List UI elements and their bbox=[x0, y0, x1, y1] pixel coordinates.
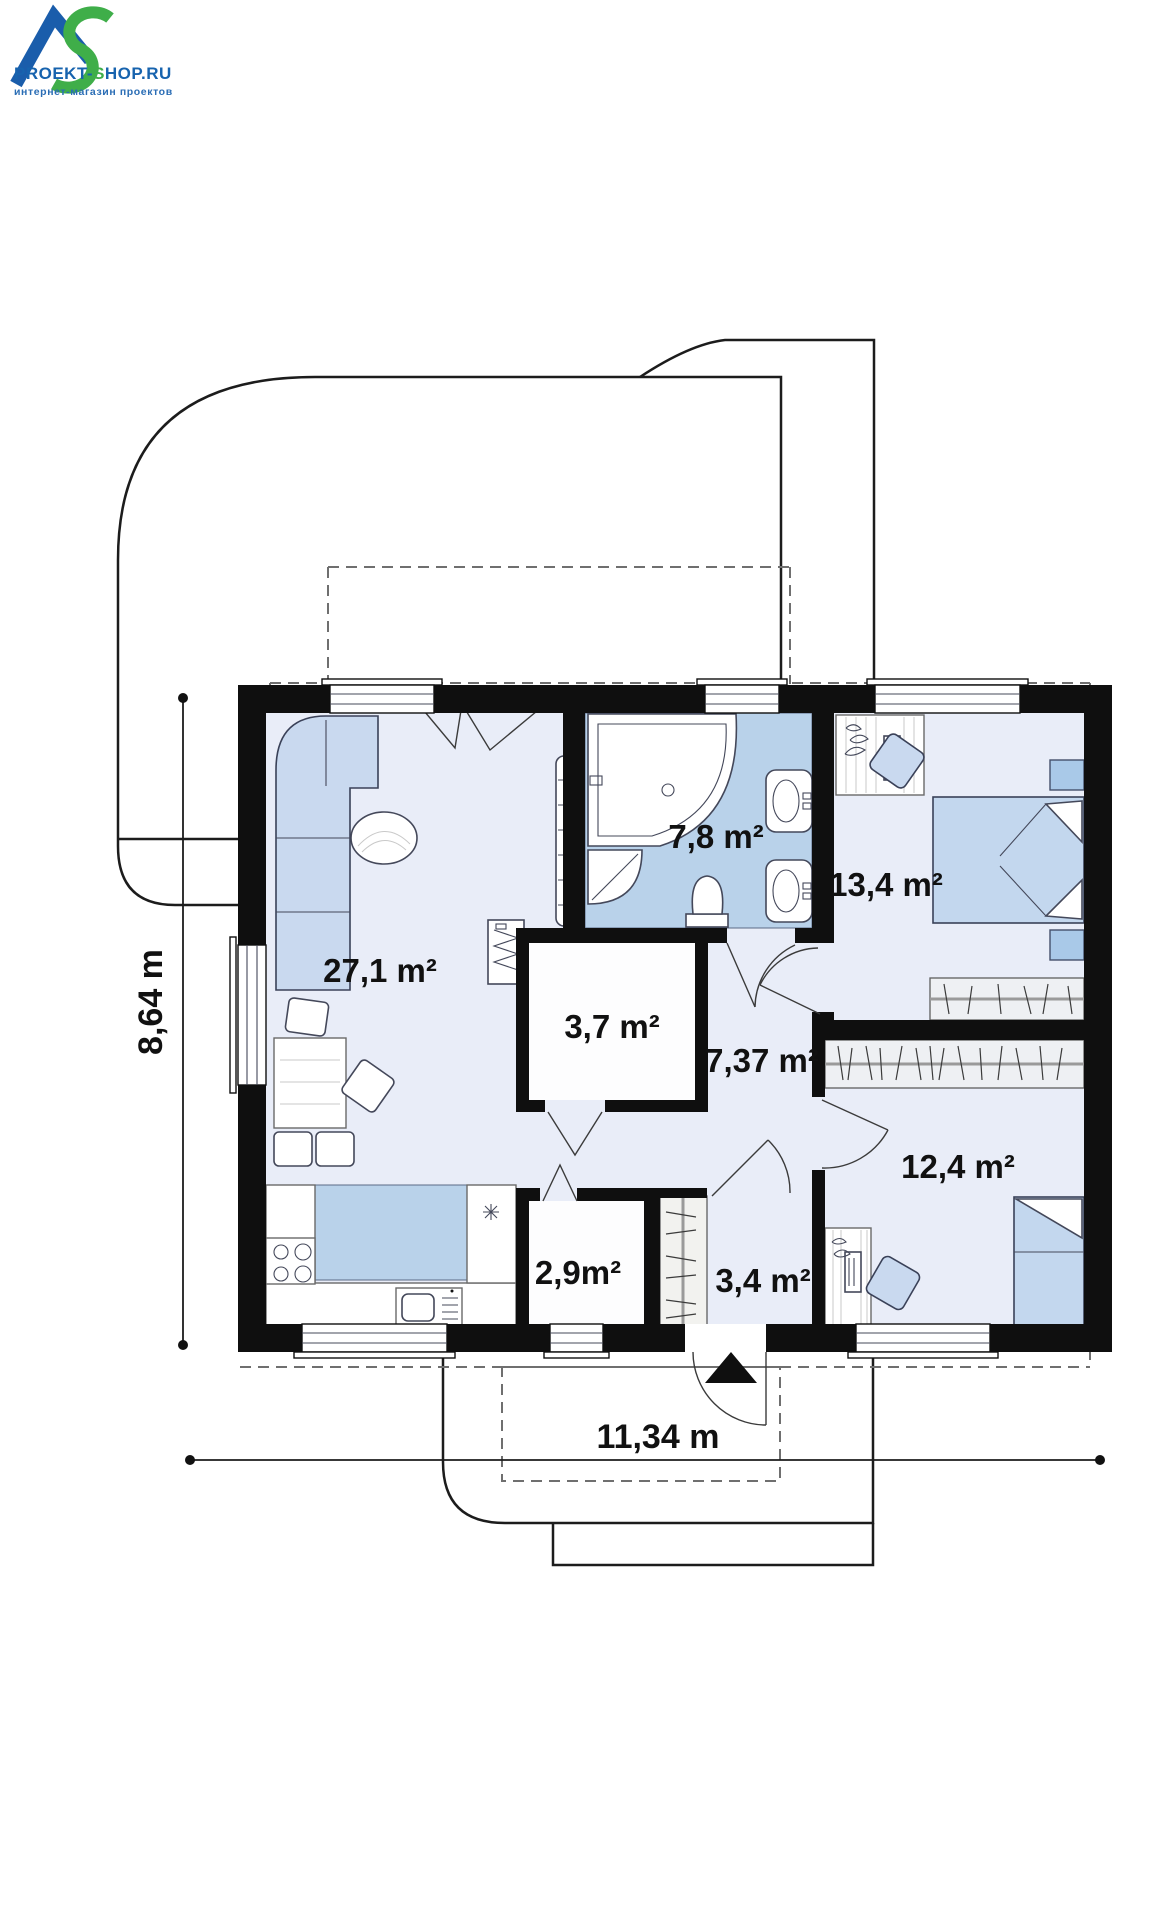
bathroom-sink-1 bbox=[766, 770, 812, 832]
logo: PROEKT-SHOP.RU интернет-магазин проектов bbox=[14, 12, 173, 98]
label-tech-room: 3,7 m² bbox=[564, 1008, 659, 1045]
window-bottom-pantry bbox=[544, 1324, 609, 1358]
label-living-room: 27,1 m² bbox=[323, 952, 437, 989]
dimension-vertical: 8,64 m bbox=[132, 693, 188, 1350]
stove bbox=[266, 1238, 315, 1284]
logo-title-part3: HOP.RU bbox=[105, 64, 172, 83]
cooker-hood-icon bbox=[483, 1204, 499, 1220]
logo-title-part1: PROEKT- bbox=[14, 64, 93, 83]
dining-chair-3 bbox=[274, 1132, 312, 1166]
label-bedroom-2: 12,4 m² bbox=[901, 1148, 1015, 1185]
kitchen-sink bbox=[396, 1288, 462, 1326]
nightstand-1 bbox=[1050, 760, 1084, 790]
coffee-table bbox=[351, 812, 417, 864]
width-dimension-label: 11,34 m bbox=[597, 1418, 720, 1456]
bathroom-sink-2 bbox=[766, 860, 812, 922]
label-pantry: 2,9m² bbox=[535, 1254, 621, 1291]
bed-1 bbox=[933, 797, 1084, 923]
floor-plan-page: 8,64 m 11,34 m bbox=[0, 0, 1152, 1913]
label-hallway: 7,37 m² bbox=[705, 1042, 819, 1079]
window-bottom-bedroom bbox=[848, 1324, 998, 1358]
window-top-living bbox=[322, 679, 442, 713]
dimension-dot-bottom bbox=[178, 1340, 188, 1350]
logo-subtitle: интернет-магазин проектов bbox=[14, 86, 173, 98]
coat-closet bbox=[660, 1196, 707, 1326]
label-bathroom: 7,8 m² bbox=[668, 818, 763, 855]
label-bedroom-1: 13,4 m² bbox=[829, 866, 943, 903]
window-top-bedroom bbox=[867, 679, 1028, 713]
window-top-bathroom bbox=[697, 679, 787, 713]
dimension-dot-right bbox=[1095, 1455, 1105, 1465]
wardrobe-bedroom-2 bbox=[825, 1040, 1084, 1088]
logo-title-part2: S bbox=[93, 64, 105, 83]
dining-chair-4 bbox=[316, 1132, 354, 1166]
dimension-horizontal: 11,34 m bbox=[185, 1418, 1105, 1465]
desk-bedroom-2 bbox=[825, 1228, 871, 1328]
dining-chair-1 bbox=[285, 997, 329, 1036]
kitchen-zone bbox=[315, 1185, 467, 1280]
logo-title: PROEKT-SHOP.RU bbox=[14, 64, 172, 83]
window-bottom-kitchen bbox=[294, 1324, 455, 1358]
dining-table bbox=[274, 1038, 346, 1128]
nightstand-2 bbox=[1050, 930, 1084, 960]
bed-2 bbox=[1014, 1197, 1084, 1330]
entrance-opening bbox=[685, 1324, 766, 1352]
dimension-dot-left bbox=[185, 1455, 195, 1465]
dimension-dot-top bbox=[178, 693, 188, 703]
label-entry: 3,4 m² bbox=[715, 1262, 810, 1299]
height-dimension-label: 8,64 m bbox=[132, 949, 170, 1055]
floor-plan-drawing: 8,64 m 11,34 m bbox=[0, 0, 1152, 1913]
window-left-living bbox=[230, 937, 266, 1093]
wardrobe-bedroom-1 bbox=[930, 978, 1084, 1020]
